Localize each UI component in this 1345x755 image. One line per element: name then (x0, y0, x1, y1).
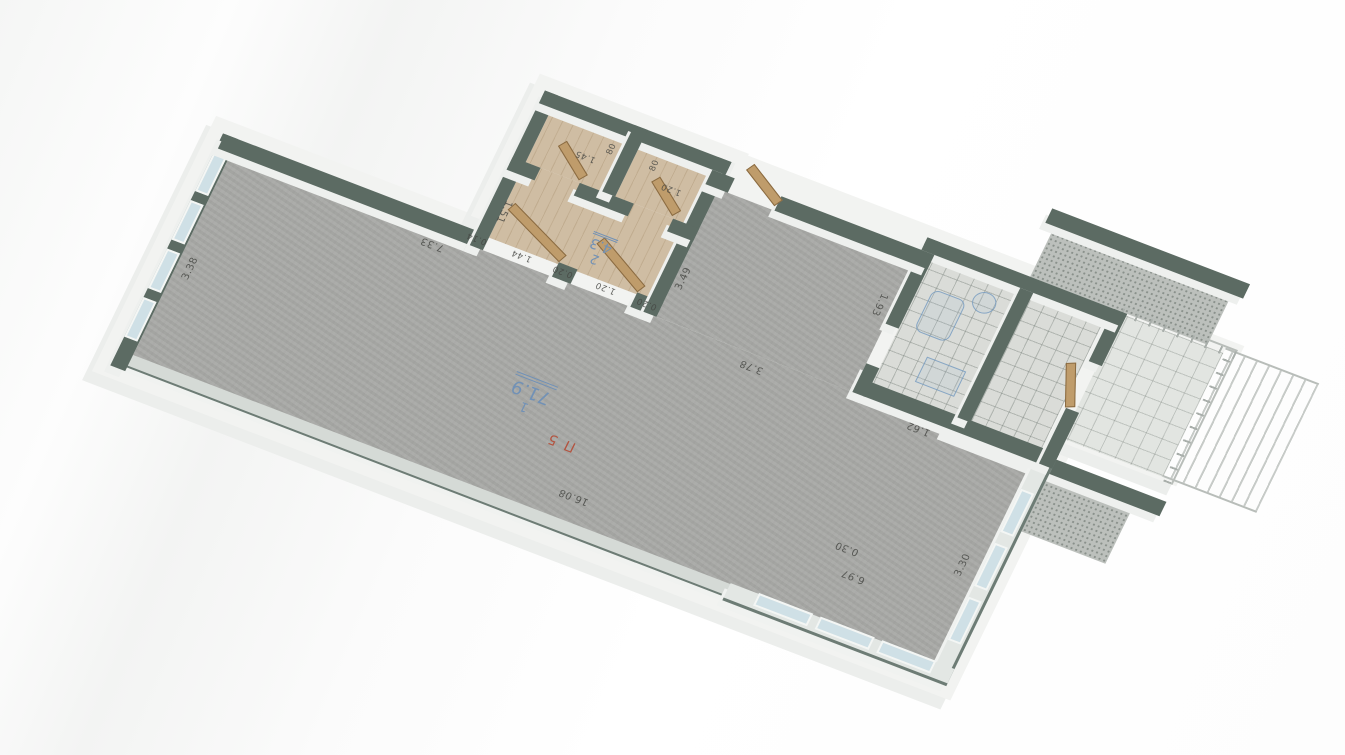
porch-door-leaf (1065, 363, 1076, 408)
floor-plan-3d: 1 71.9 П 5 2 4.3 16.08 6.97 0.30 3.38 3.… (4, 0, 1293, 755)
floor-plan-viewport[interactable]: 1 71.9 П 5 2 4.3 16.08 6.97 0.30 3.38 3.… (0, 0, 1345, 755)
